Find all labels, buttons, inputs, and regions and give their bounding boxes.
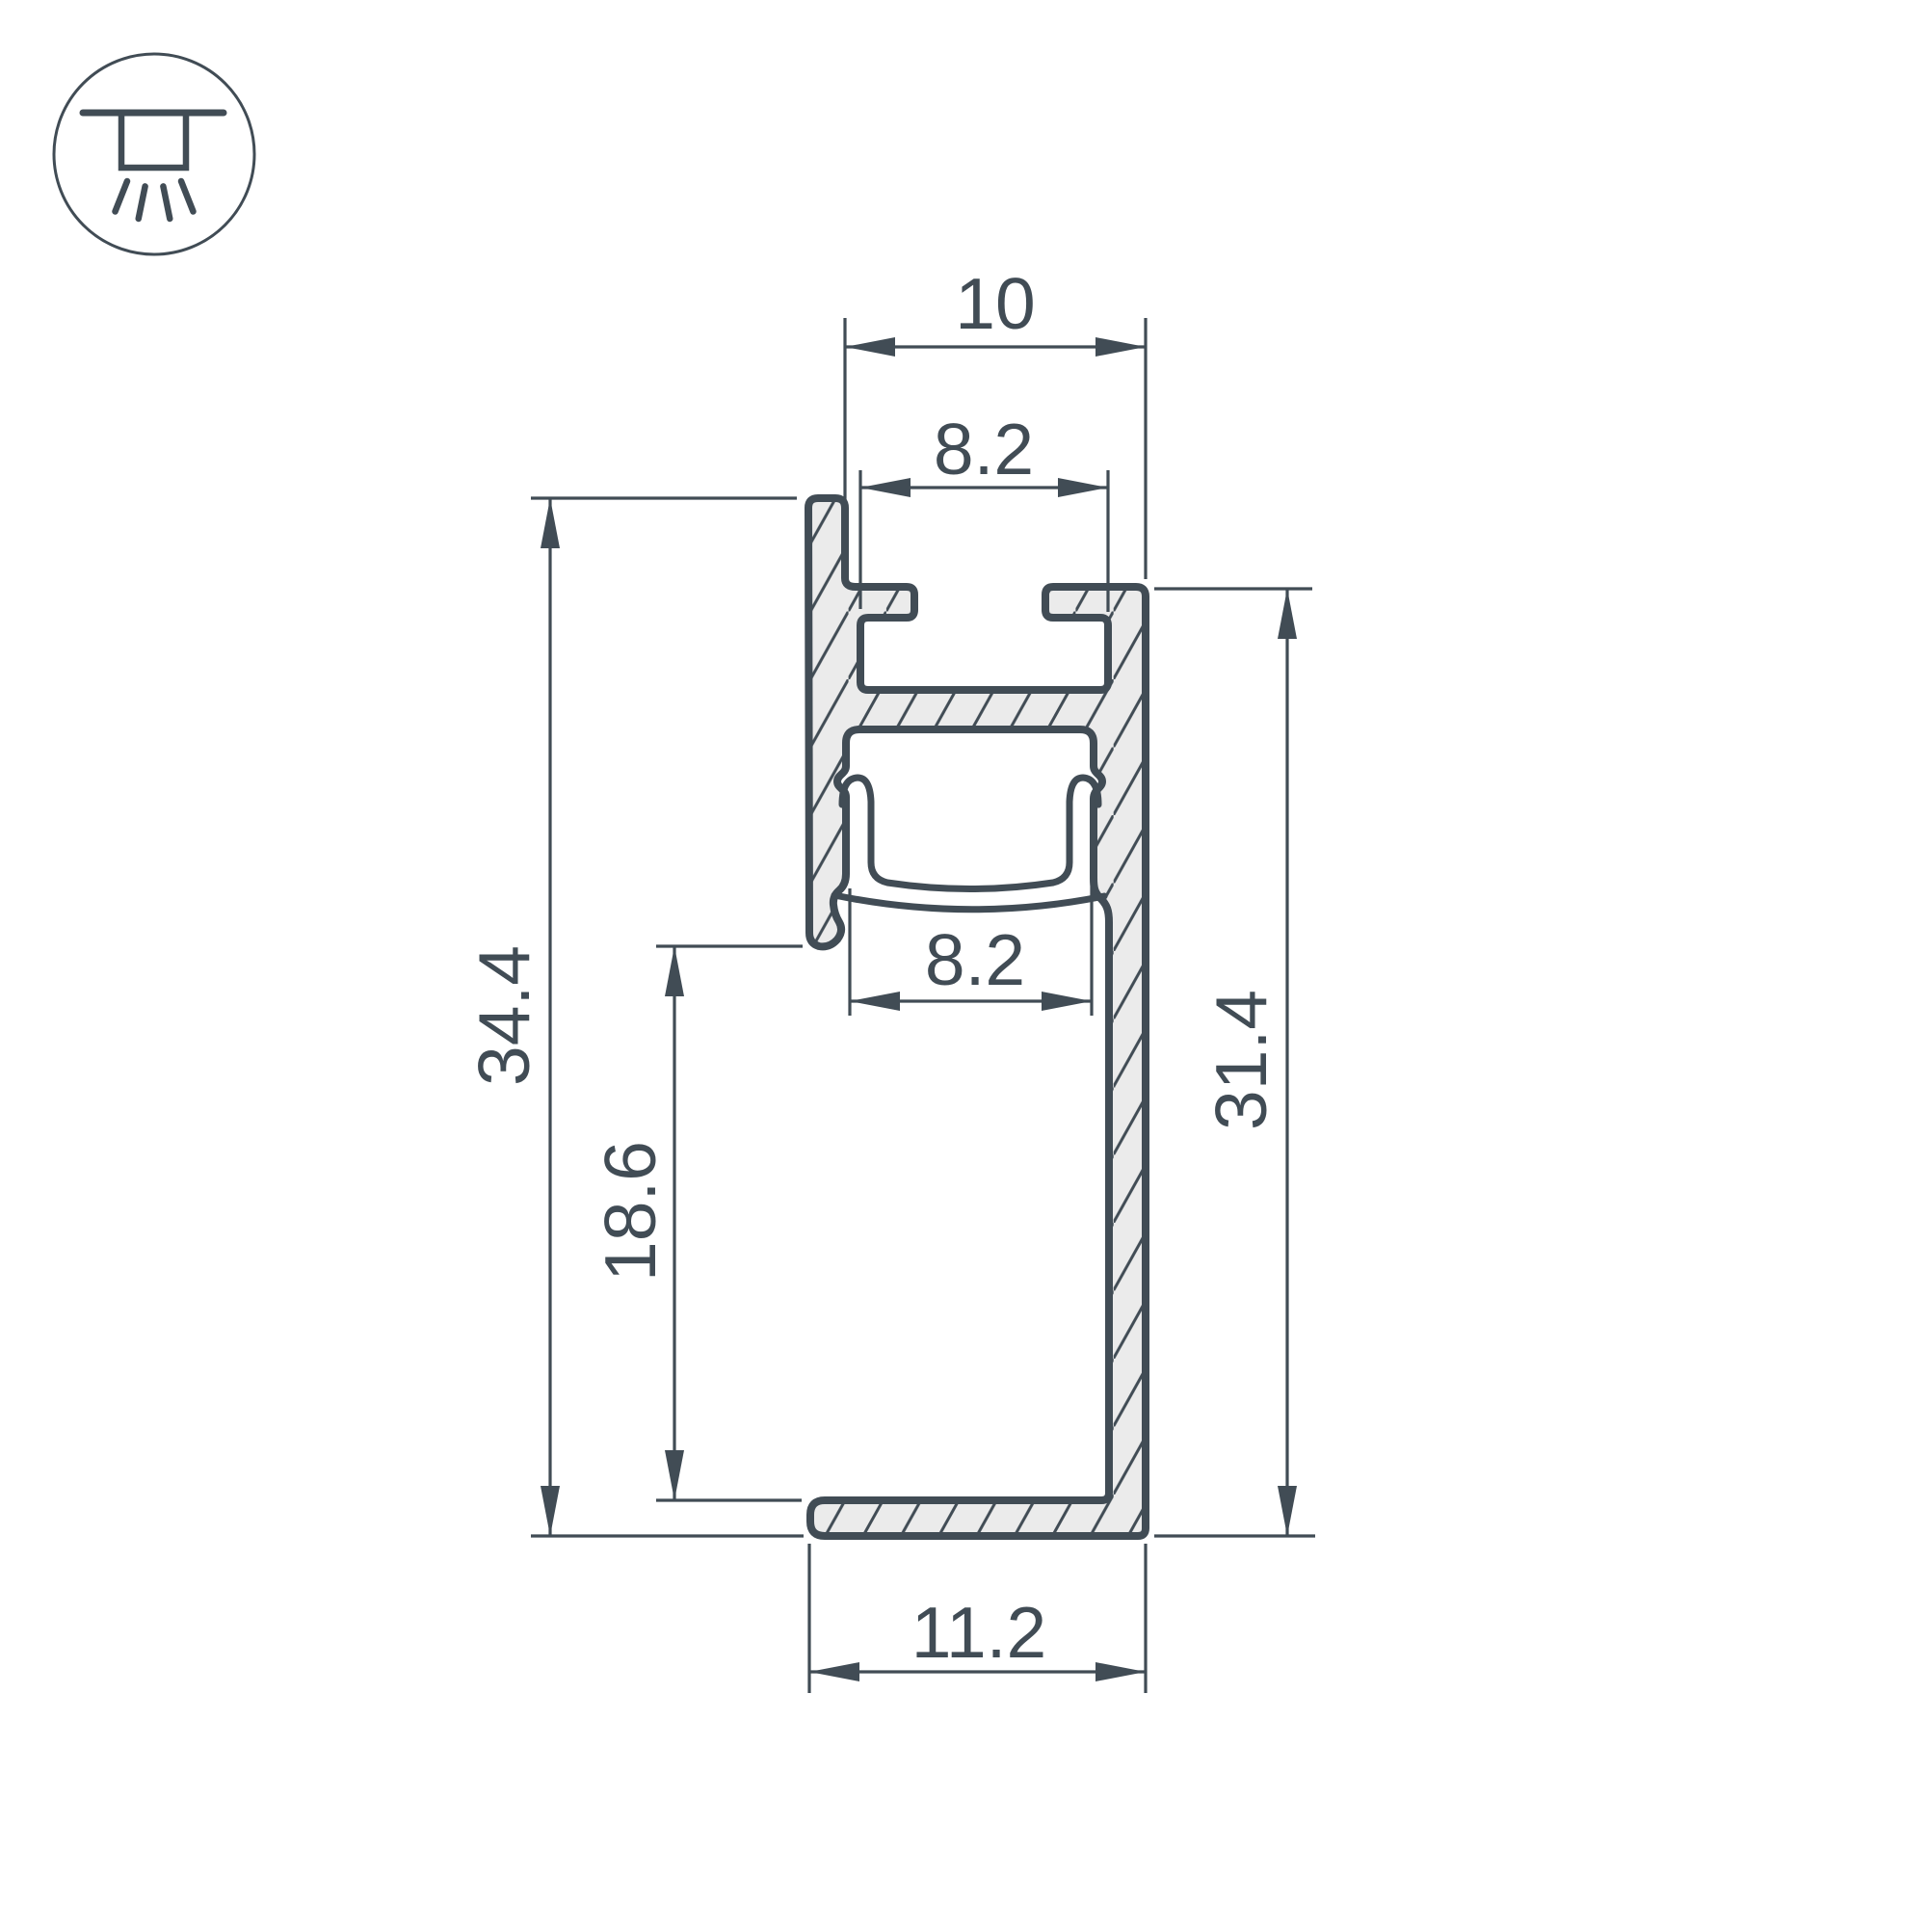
svg-text:8.2: 8.2	[934, 409, 1034, 490]
svg-text:31.4: 31.4	[1201, 990, 1281, 1130]
svg-text:8.2: 8.2	[925, 919, 1025, 1000]
svg-text:34.4: 34.4	[463, 945, 544, 1086]
svg-text:11.2: 11.2	[911, 1592, 1046, 1673]
svg-text:10: 10	[955, 263, 1035, 344]
svg-text:18.6: 18.6	[590, 1141, 671, 1282]
